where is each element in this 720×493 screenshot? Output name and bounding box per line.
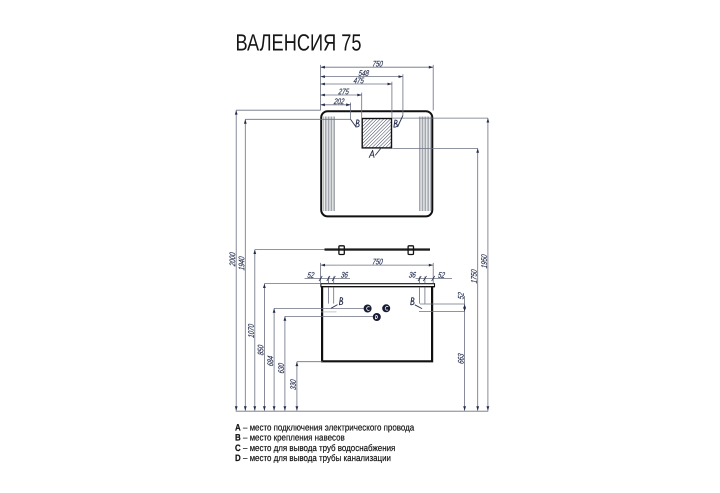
svg-text:ВАЛЕНСИЯ 75: ВАЛЕНСИЯ 75 — [236, 29, 362, 55]
svg-text:D – место для вывода трубы кан: D – место для вывода трубы канализации — [235, 453, 391, 463]
svg-text:C – место для вывода труб водо: C – место для вывода труб водоснабжения — [235, 443, 395, 453]
svg-text:A – место подключения электрич: A – место подключения электрического про… — [235, 422, 415, 432]
svg-text:B – место крепления навесов: B – место крепления навесов — [235, 433, 345, 443]
